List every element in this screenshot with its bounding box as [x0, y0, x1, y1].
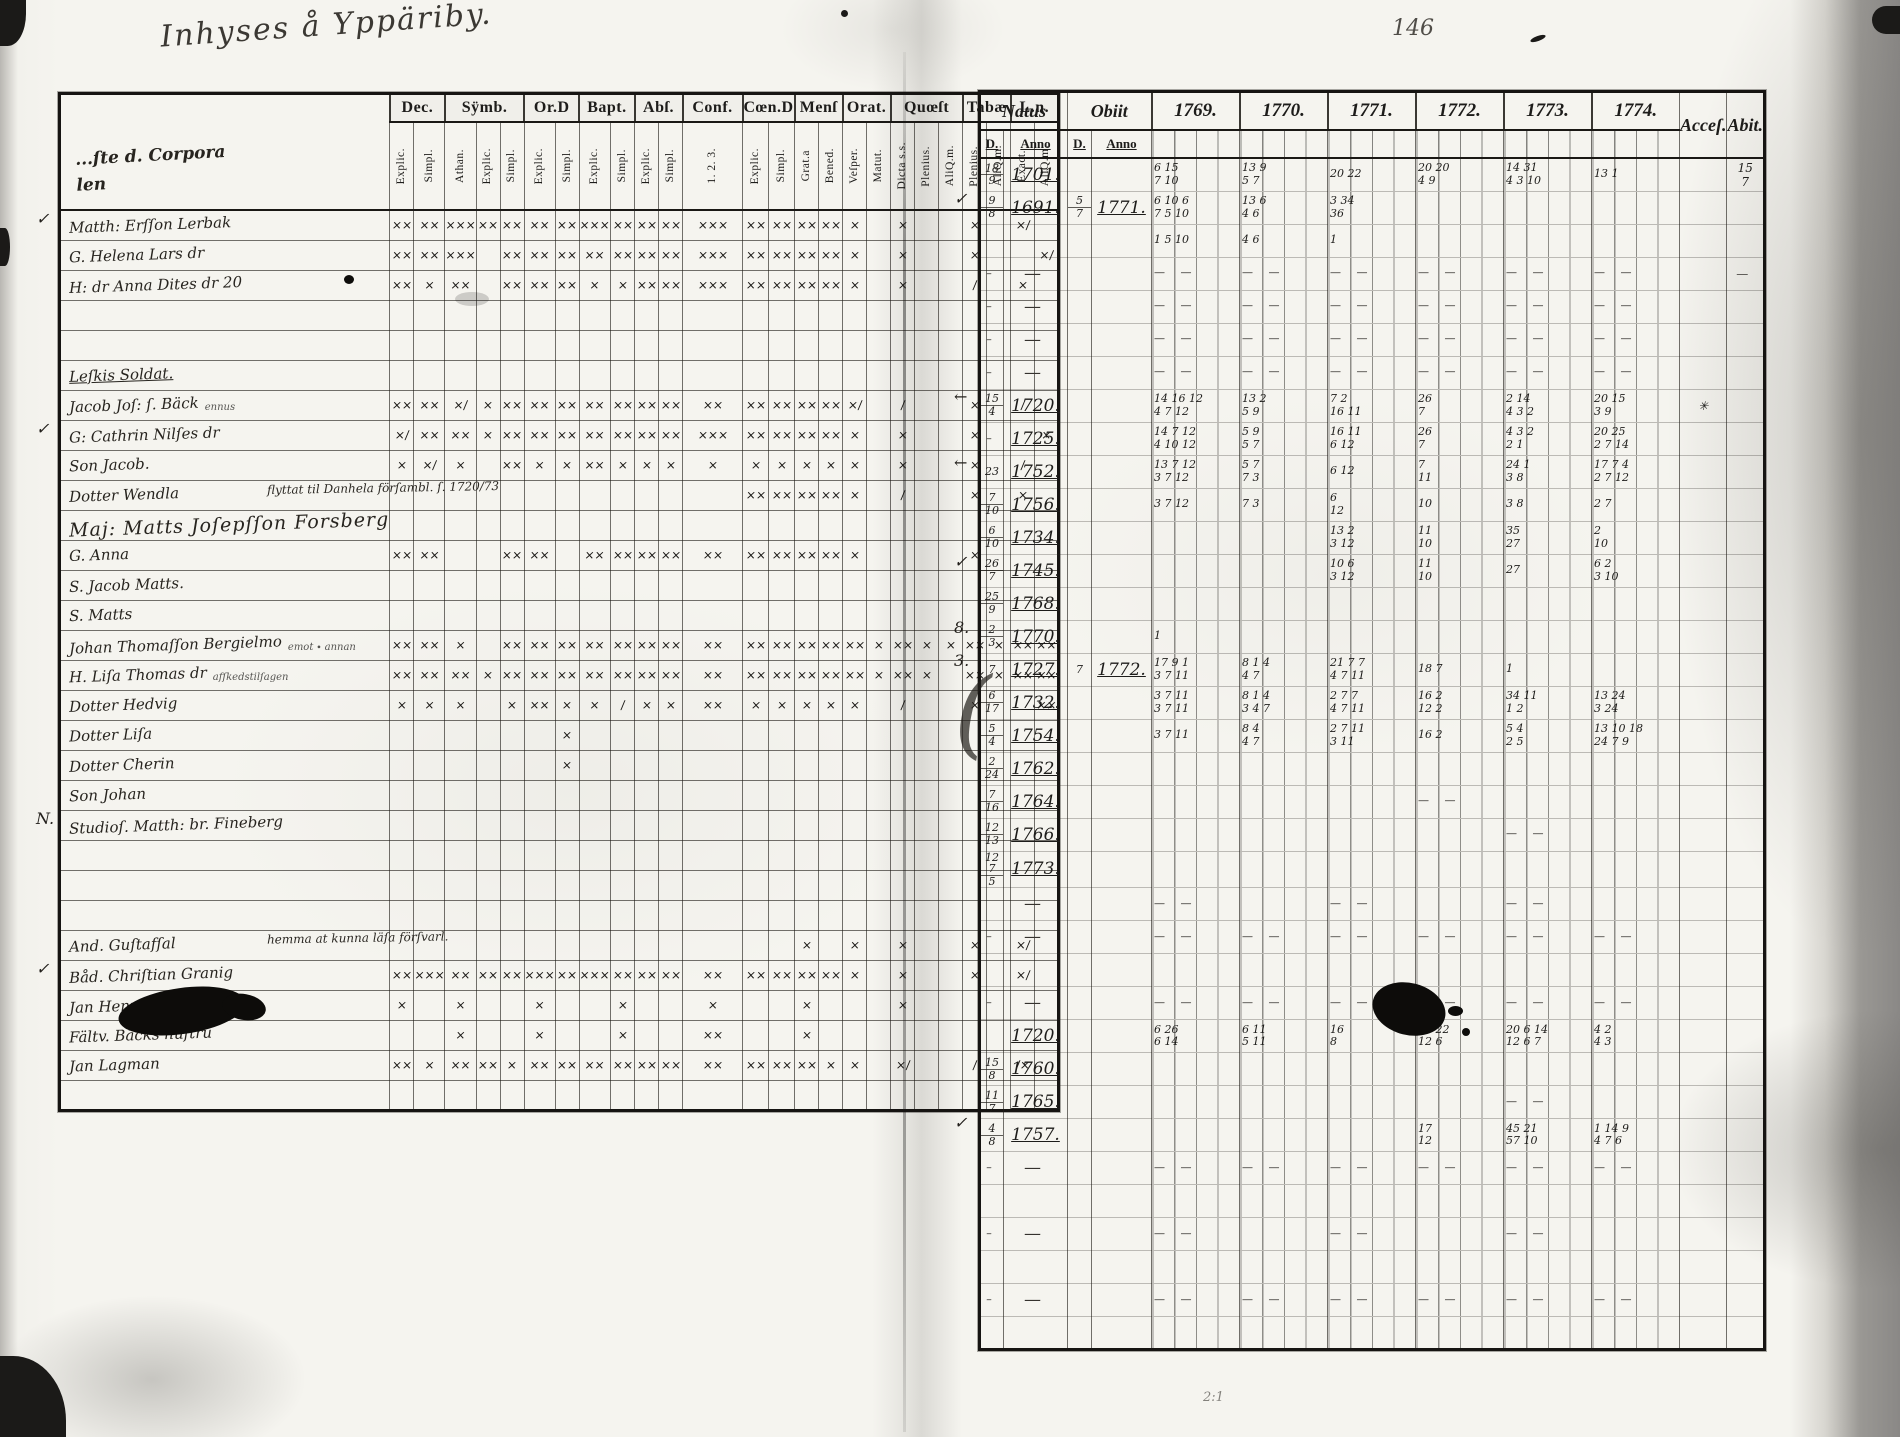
corner-mark-top-left	[0, 0, 26, 46]
year-marks-cell	[1152, 1185, 1240, 1218]
mark-cell: ×	[443, 690, 477, 720]
bottom-margin-mark: 2:1	[1203, 1390, 1224, 1405]
year-marks-cell	[1592, 752, 1680, 785]
mark-cell	[767, 750, 796, 780]
year-marks-cell: — —	[1504, 290, 1592, 323]
year-register-row: 1720.6 266 146 115 1116815 2212 620 6 14…	[980, 1020, 1765, 1053]
acces-cell	[1680, 785, 1727, 818]
mark-cell	[817, 510, 844, 540]
mark-cell	[475, 450, 502, 480]
mark-cell: ××	[793, 240, 820, 270]
mark-cell	[499, 570, 526, 600]
mark-cell	[937, 810, 964, 840]
year-marks-cell	[1592, 1185, 1680, 1218]
mark-cell	[841, 360, 868, 390]
mark-cell: ×	[817, 1050, 844, 1080]
mark-cell	[865, 930, 892, 960]
natus-anno-cell: 1773.	[1004, 851, 1068, 888]
mark-cell	[657, 780, 684, 810]
year-marks-cell	[1504, 954, 1592, 987]
mark-cell: ×	[523, 450, 557, 480]
mark-cell	[499, 1020, 526, 1050]
mark-cell: ×	[841, 240, 868, 270]
year-marks-cell	[1240, 1251, 1328, 1284]
year-register-row: –—— —— —— —— —— —— —	[980, 1284, 1765, 1317]
year-marks-cell	[1240, 851, 1328, 888]
mark-cell	[443, 540, 477, 570]
year-marks-cell: 6 23 10	[1592, 554, 1680, 587]
year-register-row: –—— —— —— —— —— —— —	[980, 1152, 1765, 1185]
mark-cell	[865, 1080, 892, 1110]
abit-cell	[1727, 1284, 1765, 1317]
natus-anno-cell: 1691.	[1004, 191, 1068, 224]
year-marks-cell	[1240, 1218, 1328, 1251]
acces-cell	[1680, 587, 1727, 620]
year-marks-cell: 3 7 113 7 11	[1152, 686, 1240, 719]
column-group-header: Conf.	[683, 94, 743, 123]
mark-cell	[817, 1080, 844, 1110]
mark-cell: ××	[578, 1050, 612, 1080]
mark-cell: ∕	[889, 390, 916, 420]
mark-cell	[443, 930, 477, 960]
margin-checkmark: ✓	[36, 959, 49, 978]
mark-cell	[865, 570, 892, 600]
mark-cell	[475, 330, 502, 360]
mark-cell	[865, 1050, 892, 1080]
year-marks-cell: 1	[1152, 620, 1240, 653]
year-marks-cell	[1592, 191, 1680, 224]
acces-cell	[1680, 1251, 1727, 1284]
mark-cell	[388, 900, 415, 930]
natus-day-cell: –	[980, 1284, 1004, 1317]
year-marks-cell	[1592, 818, 1680, 851]
natus-day-cell: 48	[980, 1119, 1004, 1152]
mark-cell: ××	[633, 240, 660, 270]
obiit-anno-cell	[1092, 290, 1152, 323]
year-header: 1770.	[1240, 92, 1328, 131]
mark-cell: ×	[523, 990, 557, 1020]
mark-cell: ×××	[681, 210, 744, 240]
mark-cell: ×	[681, 990, 744, 1020]
year-marks-cell	[1328, 752, 1416, 785]
column-group-header: Cœn.D	[743, 94, 795, 123]
obiit-day-cell	[1068, 389, 1092, 422]
obiit-day-cell	[1068, 1119, 1092, 1152]
column-sub-header: Explic.	[524, 122, 555, 210]
mark-cell	[475, 900, 502, 930]
mark-cell	[609, 930, 636, 960]
obiit-anno-cell	[1092, 257, 1152, 290]
mark-cell: ×××	[578, 210, 612, 240]
mark-cell	[865, 690, 892, 720]
acces-cell	[1680, 1053, 1727, 1086]
abit-cell	[1727, 422, 1765, 455]
year-marks-cell: 1110	[1416, 554, 1504, 587]
ink-dot	[344, 275, 354, 284]
mark-cell	[767, 840, 796, 870]
mark-cell: ×∕	[841, 390, 868, 420]
mark-cell: ××	[609, 1050, 636, 1080]
mark-cell	[681, 780, 744, 810]
natus-day-subheader: D.	[980, 130, 1004, 158]
mark-cell: ××	[817, 210, 844, 240]
mark-cell	[793, 720, 820, 750]
mark-cell	[741, 1080, 770, 1110]
natus-anno-cell	[1004, 224, 1068, 257]
year-marks-cell	[1240, 587, 1328, 620]
natus-anno-cell: 1762.	[1004, 752, 1068, 785]
natus-day-cell	[980, 1317, 1004, 1350]
obiit-anno-cell	[1092, 455, 1152, 488]
mark-cell	[388, 780, 415, 810]
mark-cell: ××	[741, 540, 770, 570]
year-register-row: 1171765.— —	[980, 1086, 1765, 1119]
column-sub-header: Simpl.	[500, 122, 524, 210]
name-column-header: ...ſte d. Corporalen	[60, 94, 390, 211]
mark-cell	[475, 1080, 502, 1110]
mark-cell	[475, 930, 502, 960]
mark-cell	[633, 810, 660, 840]
mark-cell: ×××	[443, 210, 477, 240]
mark-cell	[443, 810, 477, 840]
year-marks-cell	[1240, 752, 1328, 785]
year-marks-cell	[1328, 1185, 1416, 1218]
mark-cell	[841, 600, 868, 630]
mark-cell	[817, 360, 844, 390]
mark-cell: ××	[793, 1050, 820, 1080]
mark-cell	[841, 720, 868, 750]
obiit-anno-cell	[1092, 1119, 1152, 1152]
mark-cell: ××	[767, 960, 796, 990]
year-marks-cell: 4 6	[1240, 224, 1328, 257]
column-sub-header: Explic.	[390, 122, 414, 210]
acces-cell	[1680, 1218, 1727, 1251]
mark-cell: ××	[681, 960, 744, 990]
left-page-table: ✓✓flyttat til Danhela förſambl. ſ. 1720/…	[58, 92, 1060, 1112]
obiit-day-cell	[1068, 1152, 1092, 1185]
column-group-header: Sÿmb.	[445, 94, 524, 123]
mark-cell: ××	[578, 630, 612, 660]
obiit-day-cell	[1068, 422, 1092, 455]
natus-day-cell: 716	[980, 785, 1004, 818]
mark-cell: ××	[388, 1050, 415, 1080]
mark-cell: ×	[388, 990, 415, 1020]
obiit-day-cell	[1068, 323, 1092, 356]
mark-cell: ××	[475, 1050, 502, 1080]
mark-cell	[475, 990, 502, 1020]
year-marks-cell	[1416, 1317, 1504, 1350]
obiit-day-cell	[1068, 1317, 1092, 1350]
mark-cell	[817, 330, 844, 360]
column-group-header: Dec.	[390, 94, 445, 123]
mark-cell: ××	[523, 420, 557, 450]
mark-cell	[767, 720, 796, 750]
year-marks-cell	[1328, 851, 1416, 888]
mark-cell	[499, 930, 526, 960]
mark-cell	[388, 720, 415, 750]
abit-cell	[1727, 719, 1765, 752]
obiit-anno-cell	[1092, 158, 1152, 191]
mark-cell: ×	[841, 480, 868, 510]
right-margin-mark: ✓	[954, 1113, 967, 1132]
mark-cell	[475, 510, 502, 540]
mark-cell: ××	[889, 660, 916, 690]
acces-cell	[1680, 422, 1727, 455]
mark-cell	[913, 390, 940, 420]
year-marks-cell	[1328, 587, 1416, 620]
year-marks-cell	[1416, 1251, 1504, 1284]
mark-cell	[609, 480, 636, 510]
year-marks-cell	[1592, 1218, 1680, 1251]
year-marks-cell: 16 212 2	[1416, 686, 1504, 719]
natus-anno-cell: 1760.	[1004, 1053, 1068, 1086]
mark-cell: ×××	[412, 960, 446, 990]
year-marks-cell: 2 7 113 11	[1328, 719, 1416, 752]
mark-cell	[633, 510, 660, 540]
mark-cell	[865, 540, 892, 570]
mark-cell	[767, 990, 796, 1020]
mark-cell	[889, 300, 916, 330]
mark-cell	[681, 600, 744, 630]
year-marks-cell: — —	[1240, 323, 1328, 356]
obiit-anno-cell: 1772.	[1092, 653, 1152, 686]
register-row: Dotter Cherin×	[60, 750, 1059, 780]
mark-cell	[609, 870, 636, 900]
year-marks-cell: — —	[1152, 323, 1240, 356]
mark-cell	[865, 480, 892, 510]
mark-cell: ×	[889, 420, 916, 450]
mark-cell	[741, 750, 770, 780]
obiit-anno-subheader: Anno	[1092, 130, 1152, 158]
mark-cell	[841, 840, 868, 870]
year-marks-cell	[1416, 1053, 1504, 1086]
mark-cell: ××	[633, 960, 660, 990]
column-sub-header: Veſper.	[843, 122, 867, 210]
column-sub-header: Athan.	[445, 122, 476, 210]
mark-cell: ××	[499, 660, 526, 690]
mark-cell: ×∕	[889, 1050, 916, 1080]
abit-cell	[1727, 389, 1765, 422]
mark-cell: ∕	[889, 690, 916, 720]
abit-header: Abit.	[1727, 92, 1765, 159]
mark-cell	[475, 870, 502, 900]
obiit-anno-cell	[1092, 1152, 1152, 1185]
natus-day-cell: 98	[980, 191, 1004, 224]
mark-cell	[793, 870, 820, 900]
column-group-header: Orat.	[843, 94, 891, 123]
mark-cell: ×	[741, 690, 770, 720]
register-row: Studioſ. Matth: br. Fineberg	[60, 810, 1059, 840]
year-marks-cell	[1152, 1119, 1240, 1152]
year-marks-cell: — —	[1328, 1152, 1416, 1185]
year-marks-cell	[1152, 785, 1240, 818]
mark-cell: ××	[412, 390, 446, 420]
year-marks-cell: — —	[1328, 356, 1416, 389]
year-marks-cell	[1152, 954, 1240, 987]
mark-cell	[412, 330, 446, 360]
mark-cell	[937, 480, 964, 510]
mark-cell	[913, 570, 940, 600]
mark-cell	[681, 840, 744, 870]
natus-day-cell: –	[980, 1152, 1004, 1185]
mark-cell	[817, 300, 844, 330]
mark-cell: ××	[741, 1050, 770, 1080]
mark-cell	[793, 360, 820, 390]
mark-cell: ×××	[523, 960, 557, 990]
mark-cell	[657, 510, 684, 540]
mark-cell: ××	[633, 270, 660, 300]
mark-cell: ××	[681, 690, 744, 720]
year-marks-cell: 17 9 13 7 11	[1152, 653, 1240, 686]
year-marks-cell	[1152, 554, 1240, 587]
mark-cell: ××	[388, 660, 415, 690]
mark-cell: ×	[412, 690, 446, 720]
mark-cell: ××	[793, 660, 820, 690]
mark-cell: ××	[388, 960, 415, 990]
year-marks-cell: 20 204 9	[1416, 158, 1504, 191]
mark-cell: ××	[499, 960, 526, 990]
mark-cell	[499, 720, 526, 750]
mark-cell: ××	[657, 960, 684, 990]
ink-droplet-small	[1462, 1028, 1470, 1036]
year-marks-cell	[1416, 818, 1504, 851]
obiit-header: Obiit	[1068, 92, 1152, 131]
year-marks-cell	[1416, 191, 1504, 224]
mark-cell: ××	[523, 660, 557, 690]
mark-cell	[657, 900, 684, 930]
obiit-day-cell	[1068, 851, 1092, 888]
mark-cell	[767, 570, 796, 600]
mark-cell	[913, 210, 940, 240]
column-sub-header: Explic.	[743, 122, 769, 210]
name-cell	[60, 330, 390, 360]
name-cell: H. Liſa Thomas drafſkedstilſagen	[60, 660, 390, 690]
acces-cell	[1680, 818, 1727, 851]
mark-cell	[817, 990, 844, 1020]
obiit-day-cell	[1068, 257, 1092, 290]
mark-cell	[657, 360, 684, 390]
mark-cell	[657, 570, 684, 600]
smudge	[455, 292, 489, 306]
register-row: Dotter Liſa×	[60, 720, 1059, 750]
mark-cell: ××	[817, 960, 844, 990]
year-register-row: 1541720.14 16 124 7 1213 25 97 216 11267…	[980, 389, 1765, 422]
name-cell: Studioſ. Matth: br. Fineberg	[60, 810, 390, 840]
mark-cell	[681, 480, 744, 510]
communion-marks-table: ...ſte d. CorporalenDec.Sÿmb.Or.DBapt.Ab…	[58, 92, 1060, 1112]
mark-cell	[443, 510, 477, 540]
year-subcolumn-ticks	[1416, 130, 1504, 158]
year-marks-cell	[1328, 1251, 1416, 1284]
mark-cell	[937, 990, 964, 1020]
mark-cell	[865, 360, 892, 390]
mark-cell: ××	[412, 660, 446, 690]
mark-cell: ××	[388, 390, 415, 420]
mark-cell	[578, 870, 612, 900]
natus-anno-cell: —	[1004, 987, 1068, 1020]
natus-anno-cell: 1757.	[1004, 1119, 1068, 1152]
mark-cell	[578, 1020, 612, 1050]
year-marks-cell: — —	[1416, 323, 1504, 356]
mark-cell	[499, 360, 526, 390]
name-cell: Son Johan	[60, 780, 390, 810]
year-marks-cell	[1592, 1053, 1680, 1086]
year-marks-cell: — —	[1152, 290, 1240, 323]
mark-cell: ××	[657, 420, 684, 450]
year-register-row: 1891701.6 157 1013 95 720 2220 204 914 3…	[980, 158, 1765, 191]
mark-cell	[767, 1080, 796, 1110]
year-marks-cell	[1240, 620, 1328, 653]
mark-cell	[841, 570, 868, 600]
acces-cell: ✳	[1680, 389, 1727, 422]
year-marks-cell: 1 5 10	[1152, 224, 1240, 257]
register-row: Jan Lagman××××××××××××××××××××××××××××××…	[60, 1050, 1059, 1080]
mark-cell	[793, 750, 820, 780]
mark-cell	[913, 1050, 940, 1080]
obiit-anno-cell	[1092, 1086, 1152, 1119]
obiit-day-cell	[1068, 1086, 1092, 1119]
mark-cell	[741, 900, 770, 930]
mark-cell	[937, 300, 964, 330]
year-marks-cell: 3 3436	[1328, 191, 1416, 224]
year-marks-cell: — —	[1592, 921, 1680, 954]
mark-cell	[523, 300, 557, 330]
obiit-anno-cell	[1092, 1251, 1152, 1284]
mark-cell: ××	[741, 210, 770, 240]
mark-cell: ××	[499, 270, 526, 300]
year-marks-cell: 1 14 94 7 6	[1592, 1119, 1680, 1152]
mark-cell: ××	[388, 630, 415, 660]
abit-cell	[1727, 356, 1765, 389]
mark-cell: ××	[767, 1050, 796, 1080]
natus-anno-cell	[1004, 1251, 1068, 1284]
mark-cell: ×	[443, 990, 477, 1020]
mark-cell: ××	[681, 1020, 744, 1050]
year-marks-cell: 1	[1328, 224, 1416, 257]
year-marks-cell: — —	[1328, 921, 1416, 954]
mark-cell: ×	[841, 960, 868, 990]
column-group-header: Bapt.	[579, 94, 634, 123]
year-marks-cell: — —	[1152, 1152, 1240, 1185]
mark-cell	[475, 720, 502, 750]
column-sub-header: Simpl.	[414, 122, 445, 210]
register-row	[60, 870, 1059, 900]
acces-cell	[1680, 356, 1727, 389]
mark-cell	[475, 810, 502, 840]
year-marks-cell	[1240, 888, 1328, 921]
mark-cell	[741, 510, 770, 540]
mark-cell: ×	[741, 450, 770, 480]
register-row: G. Helena Lars dr×××××××××××××××××××××××…	[60, 240, 1059, 270]
mark-cell: ××	[388, 540, 415, 570]
mark-cell	[865, 870, 892, 900]
natus-day-cell: 23	[980, 455, 1004, 488]
mark-cell: ××	[841, 630, 868, 660]
mark-cell	[681, 720, 744, 750]
mark-cell	[913, 330, 940, 360]
mark-cell: ××	[609, 540, 636, 570]
obiit-anno-cell	[1092, 1218, 1152, 1251]
mark-cell: ××	[633, 660, 660, 690]
mark-cell	[609, 720, 636, 750]
mark-cell	[633, 330, 660, 360]
obiit-day-subheader: D.	[1068, 130, 1092, 158]
year-marks-cell: 17 7 42 7 12	[1592, 455, 1680, 488]
year-marks-cell: 4 24 3	[1592, 1020, 1680, 1053]
corner-mark-bottom-left	[0, 1356, 66, 1437]
acces-cell	[1680, 954, 1727, 987]
acces-cell	[1680, 323, 1727, 356]
